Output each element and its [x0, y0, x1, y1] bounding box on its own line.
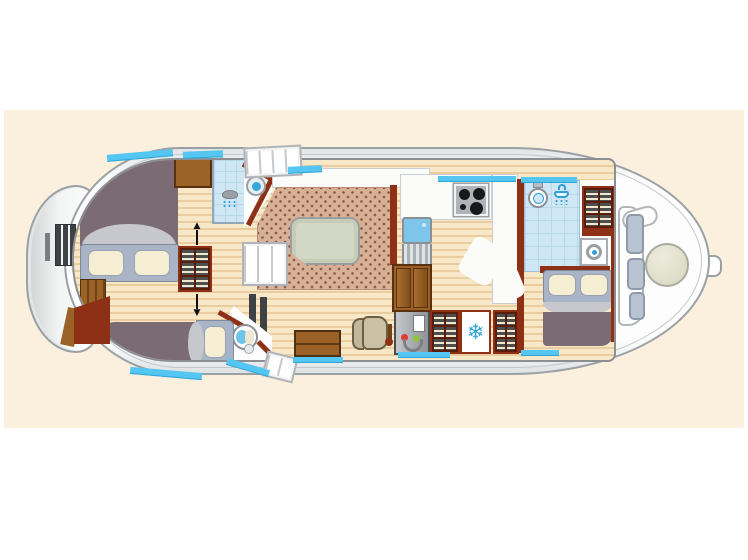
pillow: [134, 250, 170, 276]
boarding-ladder-rail: [45, 233, 50, 261]
salon-galley-wall: [390, 185, 397, 265]
burner-icon: [459, 189, 470, 200]
wardrobe: [178, 246, 212, 292]
shelf-cabinet: [430, 310, 460, 354]
second-bed-fold: [188, 322, 204, 362]
pillow: [88, 250, 124, 276]
window-strip: [521, 177, 577, 183]
aft-toilet-icon: [528, 182, 548, 208]
aft-bed-blanket: [543, 312, 613, 346]
salon-table: [290, 217, 360, 265]
window-strip: [398, 352, 450, 358]
window-strip: [293, 357, 343, 363]
galley-sink: [402, 217, 432, 244]
dresser-cabinet: [174, 158, 212, 188]
forward-shower: [212, 158, 246, 224]
mid-steps: [242, 242, 288, 286]
aft-shower-icon: [554, 184, 569, 205]
window-strip: [438, 176, 516, 182]
washbasin-icon: [246, 176, 266, 196]
pillow: [204, 326, 226, 358]
console-screen: [413, 315, 425, 332]
aft-washbasin: [580, 238, 608, 266]
fridge: ❄: [460, 310, 491, 354]
bench-cushion: [627, 258, 645, 290]
burner-icon: [470, 202, 483, 215]
window-strip: [521, 350, 559, 356]
toilet-icon: [232, 324, 258, 350]
floor-plan-page: ▲ ▼: [0, 0, 748, 560]
shower-spray-icon: [222, 200, 238, 208]
hob: [454, 184, 488, 216]
stern-deck-table: [645, 243, 689, 287]
pillow: [580, 274, 608, 296]
aft-bathroom-wall: [517, 179, 524, 353]
wardrobe-arrow-up-icon: ▲: [189, 222, 205, 248]
cabin-interior: ▲ ▼: [72, 158, 616, 362]
second-bed-blanket: [104, 322, 198, 362]
wardrobe-arrow-down-icon: ▼: [189, 294, 205, 320]
aft-bulkhead: [611, 236, 616, 342]
burner-icon: [473, 188, 485, 200]
bench-cushion: [626, 214, 644, 254]
window-strip: [183, 150, 223, 158]
helm-console: [394, 309, 430, 355]
shower-head-icon: [222, 190, 238, 199]
aft-shelf-cabinet: [582, 186, 615, 230]
snowflake-icon: ❄: [467, 322, 485, 343]
bench-cushion: [629, 292, 645, 320]
burner-icon: [460, 204, 466, 210]
steering-wheel-icon: [403, 339, 423, 352]
galley-lower-cabinet: [392, 264, 432, 312]
throttle-knob: [385, 338, 393, 346]
chest-steps: [294, 330, 341, 357]
helm-stool-seat: [362, 316, 388, 350]
pillow: [548, 274, 576, 296]
shelf-cabinet: [493, 310, 519, 354]
